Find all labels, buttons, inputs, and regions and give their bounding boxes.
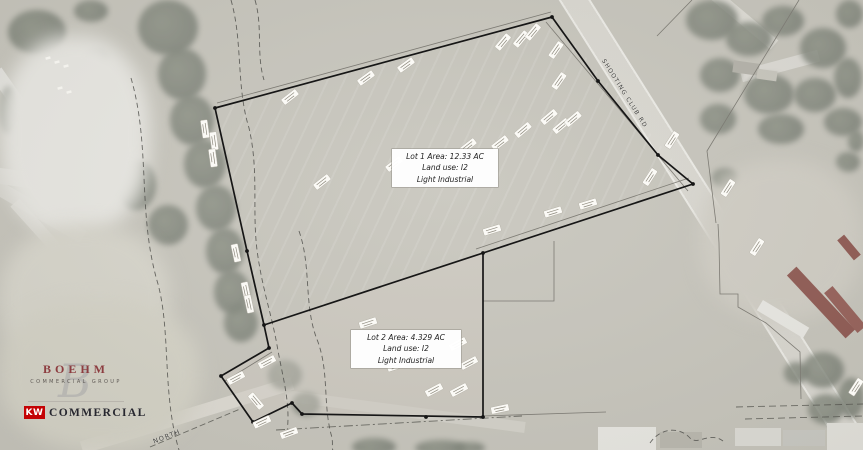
lot1-west-boundary	[215, 108, 264, 325]
dimension-tag	[200, 120, 209, 139]
dimension-tag	[357, 70, 376, 86]
lot1-landuse-text: Land use: I2	[395, 162, 495, 173]
lot2-landuse-text: Land use: I2	[354, 343, 458, 354]
boehm-logo: B BOEHM COMMERCIAL GROUP	[18, 362, 134, 385]
dimension-tag	[642, 168, 658, 187]
dimension-tag	[358, 317, 377, 329]
lot2-label-box: Lot 2 Area: 4.329 AC Land use: I2 Light …	[351, 330, 461, 368]
lot2-south-boundary	[292, 403, 483, 417]
kw-mark: KW	[24, 406, 45, 419]
lot1-road-boundary	[552, 17, 693, 184]
parked-car	[66, 90, 71, 94]
dimension-tag	[226, 371, 245, 386]
vertex-dot	[213, 106, 217, 110]
dimension-tag	[495, 33, 512, 51]
parked-car	[63, 64, 68, 68]
vertex-dot	[290, 401, 294, 405]
dimension-tag	[543, 206, 562, 218]
dimension-tag	[578, 198, 597, 210]
vertex-dot	[262, 323, 266, 327]
lot2-southwest-boundary	[221, 325, 292, 422]
dimension-tag	[313, 174, 331, 191]
dimension-tag	[459, 356, 478, 371]
vertex-dot	[481, 251, 485, 255]
dimension-tag	[551, 72, 567, 91]
lot2-area-text: Lot 2 Area: 4.329 AC	[354, 332, 458, 343]
vertex-dot	[245, 249, 249, 253]
dimension-tag	[720, 179, 736, 198]
vertex-dot	[596, 79, 600, 83]
lot1-north-boundary	[215, 17, 552, 108]
parked-car	[54, 60, 59, 64]
vertex-dot	[300, 412, 304, 416]
boehm-subtitle: COMMERCIAL GROUP	[18, 379, 134, 385]
kw-title: COMMERCIAL	[49, 407, 147, 419]
dimension-tag	[525, 23, 542, 41]
dimension-tag	[231, 243, 242, 262]
dimension-tag	[257, 355, 276, 370]
lot1-label-box: Lot 1 Area: 12.33 AC Land use: I2 Light …	[392, 149, 498, 187]
dimension-tag	[548, 41, 564, 60]
kw-commercial-logo: KW COMMERCIAL	[24, 406, 147, 419]
dimension-tag	[244, 294, 255, 313]
parked-car	[45, 56, 50, 60]
dimension-tag	[513, 30, 530, 48]
logo-divider	[28, 401, 124, 402]
vertex-dot	[691, 182, 695, 186]
lot2-zoning-text: Light Industrial	[354, 355, 458, 366]
dimension-tag	[279, 427, 298, 440]
dimension-tag	[281, 89, 299, 106]
dimension-tag	[514, 122, 532, 139]
dimension-tag	[424, 383, 443, 398]
parked-cars	[45, 56, 71, 94]
lot1-zoning-text: Light Industrial	[395, 174, 495, 185]
lot1-area-text: Lot 1 Area: 12.33 AC	[395, 151, 495, 162]
vertex-dot	[219, 374, 223, 378]
parked-car	[57, 86, 62, 90]
site-aerial-map: Lot 1 Area: 12.33 AC Land use: I2 Light …	[0, 0, 863, 450]
dimension-tag	[540, 109, 558, 126]
vertex-dot	[424, 415, 428, 419]
dimension-tag	[449, 383, 468, 398]
dimension-tag	[209, 132, 218, 151]
dimension-tag	[208, 149, 217, 168]
vertex-dot	[481, 415, 485, 419]
vertex-dot	[267, 346, 271, 350]
dimension-tag	[248, 392, 265, 410]
dimension-tag	[664, 131, 680, 150]
dimension-tag	[749, 238, 765, 257]
contour-lines	[131, 0, 723, 450]
dimension-tag	[482, 224, 501, 236]
dimension-tag	[397, 57, 416, 73]
dimension-tag	[848, 378, 863, 397]
lot1-south-boundary	[264, 184, 693, 325]
vertex-dot	[656, 153, 660, 157]
boehm-title: BOEHM	[18, 362, 134, 377]
dimension-tag	[490, 404, 509, 415]
vertex-dot	[550, 15, 554, 19]
adjacent-parcel-lines	[217, 0, 801, 416]
